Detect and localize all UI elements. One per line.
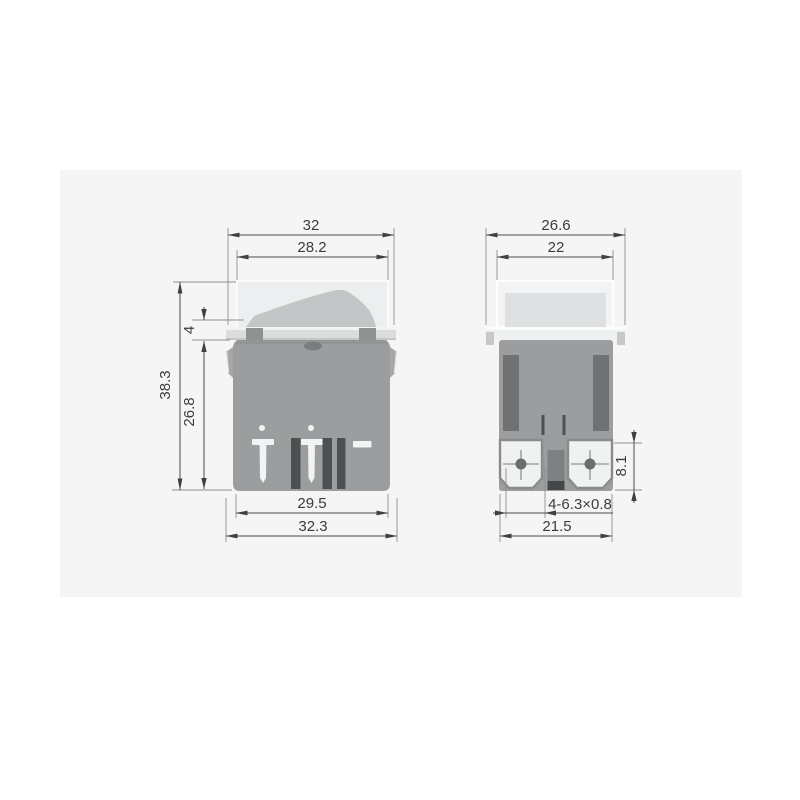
- dim-side-overall-depth: 26.6: [541, 217, 570, 234]
- screw-dot: [585, 459, 596, 470]
- dim-front-flange-width: 32.3: [298, 518, 327, 535]
- dim-front-overall-width: 32: [303, 217, 320, 234]
- marking-slot-3: [337, 438, 346, 489]
- marking-t2-stem: [308, 439, 315, 483]
- side-bezel-foot-right: [617, 332, 625, 345]
- marking-dot-2: [308, 425, 314, 431]
- marking-t1-stem: [260, 439, 267, 483]
- screw-terminal-right: [568, 440, 612, 488]
- dimension-drawing: 32 28.2 38.3 4 26.8 29.5 32.3 26.6 22: [0, 0, 800, 800]
- body-center-notch: [304, 342, 322, 351]
- dim-side-bottom-depth: 21.5: [542, 518, 571, 535]
- screw-dot: [516, 459, 527, 470]
- marking-dot-1: [259, 425, 265, 431]
- marking-slot-2: [323, 438, 333, 489]
- side-bezel-foot-left: [486, 332, 494, 345]
- dim-side-cover-depth: 22: [548, 239, 565, 256]
- dim-front-body-height: 26.8: [181, 397, 198, 426]
- dim-front-overall-height: 38.3: [157, 370, 174, 399]
- dim-front-bezel-height: 4: [181, 326, 198, 334]
- side-bezel-highlight: [486, 327, 625, 330]
- side-pin-right: [563, 415, 566, 435]
- dim-side-terminal-spec: 4-6.3×0.8: [548, 496, 612, 513]
- side-pin-left: [542, 415, 545, 435]
- side-cover-inner: [505, 293, 606, 327]
- dim-front-body-bottom-width: 29.5: [297, 495, 326, 512]
- technical-drawing-page: 32 28.2 38.3 4 26.8 29.5 32.3 26.6 22: [0, 0, 800, 800]
- side-slot-right: [593, 355, 609, 431]
- marking-dash: [353, 441, 372, 448]
- side-view: [486, 281, 625, 491]
- marking-slot-1: [291, 438, 301, 489]
- side-slot-left: [503, 355, 519, 431]
- terminal-gap-shadow: [548, 481, 565, 490]
- dim-side-terminal-height: 8.1: [613, 456, 630, 477]
- dim-front-cover-width: 28.2: [297, 239, 326, 256]
- front-view: [226, 281, 397, 491]
